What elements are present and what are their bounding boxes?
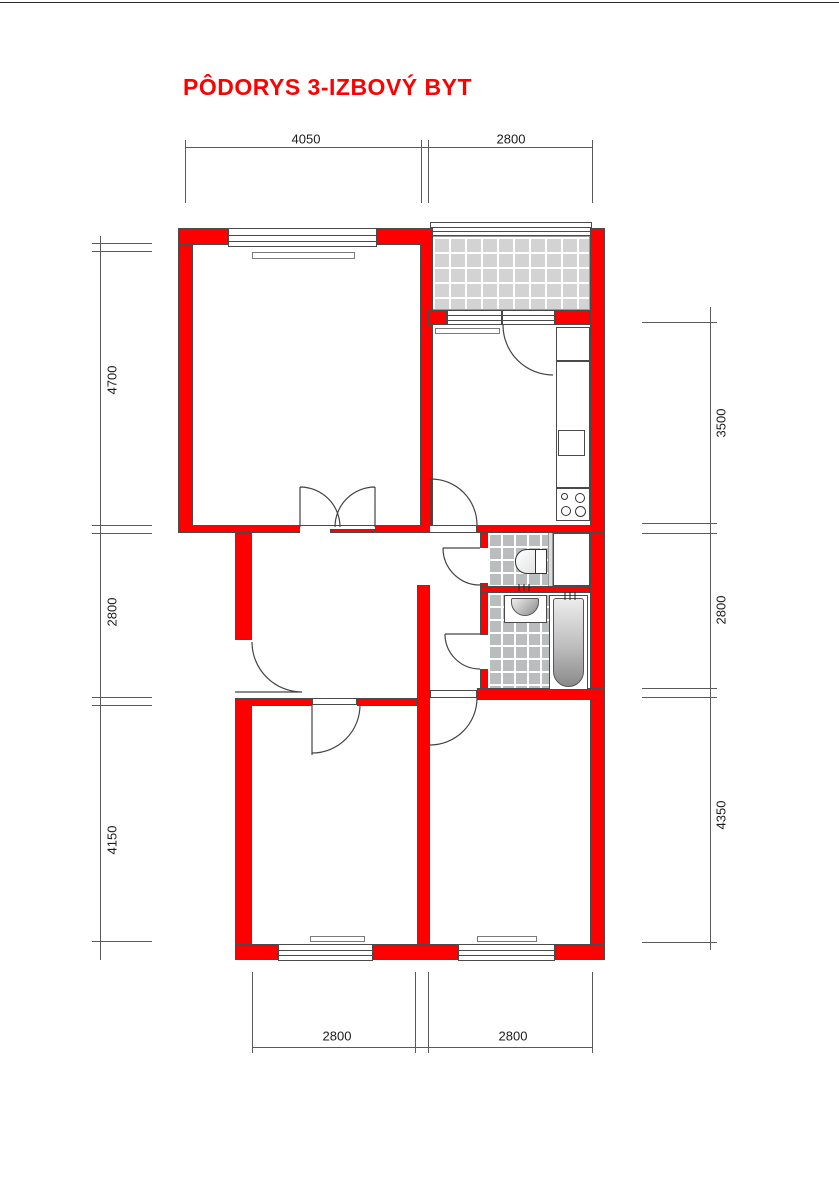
dimension-line — [185, 147, 592, 148]
dimension-line — [252, 1047, 592, 1048]
extension-line — [642, 942, 717, 943]
living-room-double-door-right — [335, 487, 375, 527]
balcony-door-arc — [503, 325, 553, 375]
extension-line — [92, 697, 152, 698]
extension-line — [92, 705, 152, 706]
extension-line — [428, 140, 429, 203]
extension-line — [421, 140, 422, 203]
washbasin-tap-icon — [519, 584, 529, 591]
dimension-label: 4050 — [292, 132, 321, 147]
bedroom-right-door-arc — [430, 698, 477, 745]
extension-line — [92, 243, 152, 244]
kitchen-door-arc — [431, 479, 477, 525]
extension-line — [642, 533, 717, 534]
dimension-line — [100, 236, 101, 960]
wc-door-arc — [443, 548, 480, 585]
extension-line — [642, 322, 717, 323]
extension-line — [92, 251, 152, 252]
bedroom-left-door-arc — [312, 705, 360, 755]
extension-line — [185, 140, 186, 203]
dimension-label: 2800 — [323, 1029, 352, 1044]
extension-line — [415, 972, 416, 1053]
extension-line — [592, 972, 593, 1053]
dimension-label: 4700 — [105, 366, 120, 395]
bathroom-door-arc — [445, 634, 480, 669]
extension-line — [642, 688, 717, 689]
extension-line — [592, 140, 593, 203]
dimension-label: 4150 — [105, 826, 120, 855]
bathtub-tap-icon — [565, 592, 575, 600]
dimension-label: 2800 — [714, 596, 729, 625]
dimension-label: 2800 — [497, 132, 526, 147]
extension-line — [92, 533, 152, 534]
extension-line — [642, 697, 717, 698]
dimension-line — [710, 307, 711, 950]
dimension-label: 4350 — [714, 801, 729, 830]
extension-line — [252, 972, 253, 1053]
living-room-double-door-left — [300, 487, 340, 527]
entrance-door-arc — [235, 642, 302, 692]
dimension-label: 3500 — [714, 409, 729, 438]
extension-line — [92, 525, 152, 526]
extension-line — [428, 972, 429, 1053]
dimension-label: 2800 — [105, 598, 120, 627]
extension-line — [642, 523, 717, 524]
extension-line — [92, 941, 152, 942]
dimension-label: 2800 — [499, 1029, 528, 1044]
floor-plan-page: PÔDORYS 3-IZBOVÝ BYT — [0, 0, 839, 1192]
